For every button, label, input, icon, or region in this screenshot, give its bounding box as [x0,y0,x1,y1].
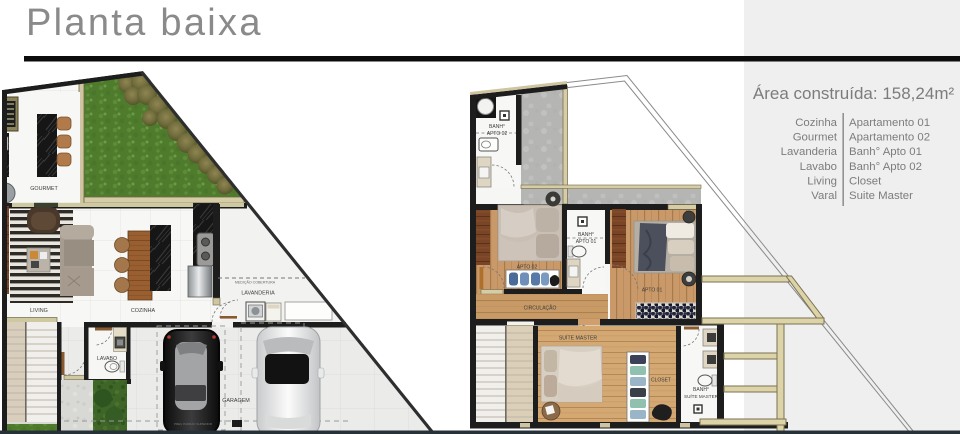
svg-text:Lavabo: Lavabo [800,161,837,173]
svg-text:Lavanderia: Lavanderia [781,146,838,158]
svg-text:LAVANDERIA: LAVANDERIA [241,291,275,297]
svg-text:CLOSET: CLOSET [651,378,671,384]
svg-text:Cozinha: Cozinha [795,117,837,129]
svg-text:Banh° Apto 02: Banh° Apto 02 [849,161,922,173]
svg-text:GOURMET: GOURMET [30,186,58,192]
svg-text:Área construída: 158,24m²: Área construída: 158,24m² [753,84,955,103]
svg-text:GARAGEM: GARAGEM [222,398,250,404]
svg-text:BANH°: BANH° [489,124,505,130]
svg-text:APTO 01: APTO 01 [576,239,597,245]
svg-text:SUÍTE MASTER: SUÍTE MASTER [684,393,719,399]
svg-text:BANH°: BANH° [693,387,709,393]
svg-text:Planta baixa: Planta baixa [26,2,263,44]
svg-text:LAVABO: LAVABO [97,356,117,362]
svg-text:Living: Living [807,175,837,187]
svg-text:PREÇ PADRÃO SUPERIOR: PREÇ PADRÃO SUPERIOR [174,421,213,426]
svg-text:Apartamento 01: Apartamento 01 [849,117,930,129]
svg-text:SUÍTE MASTER: SUÍTE MASTER [559,335,598,342]
svg-text:BANH°: BANH° [578,232,594,238]
svg-text:CIRCULAÇÃO: CIRCULAÇÃO [524,305,557,312]
svg-text:APTO 01: APTO 01 [642,288,663,294]
svg-text:Banh° Apto 01: Banh° Apto 01 [849,146,922,158]
svg-text:LIVING: LIVING [30,308,48,314]
svg-text:Suite Master: Suite Master [849,190,913,202]
svg-text:MEDIÇÃO COBERTURA: MEDIÇÃO COBERTURA [235,280,276,285]
svg-text:APTO 02: APTO 02 [487,131,508,137]
svg-text:Varal: Varal [811,190,837,202]
svg-text:COZINHA: COZINHA [131,308,156,314]
svg-text:Apartamento 02: Apartamento 02 [849,132,930,144]
svg-text:Gourmet: Gourmet [793,132,838,144]
svg-text:Closet: Closet [849,175,882,187]
